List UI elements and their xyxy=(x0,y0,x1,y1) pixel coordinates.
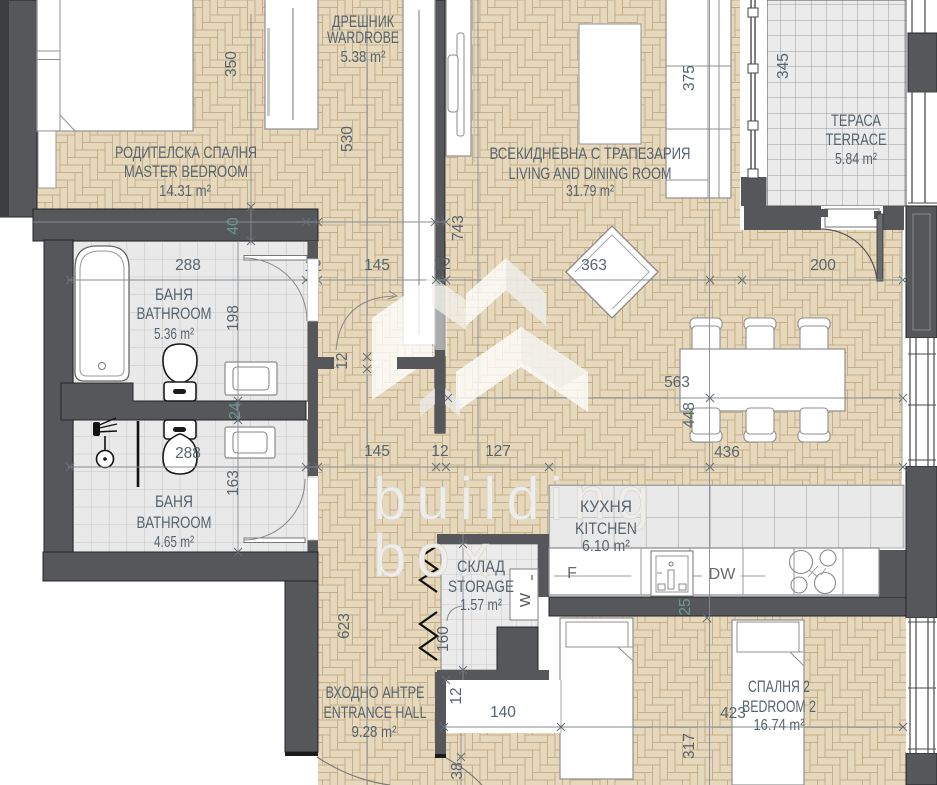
svg-text:345: 345 xyxy=(775,53,792,79)
svg-text:12: 12 xyxy=(334,352,351,369)
svg-text:350: 350 xyxy=(223,51,240,77)
svg-text:КУХНЯ: КУХНЯ xyxy=(580,497,632,516)
svg-text:12: 12 xyxy=(433,256,450,273)
svg-text:160: 160 xyxy=(435,626,452,652)
svg-text:СКЛАД: СКЛАД xyxy=(457,557,505,576)
svg-text:F: F xyxy=(567,565,577,582)
svg-text:375: 375 xyxy=(681,65,698,91)
svg-text:W: W xyxy=(517,592,534,607)
svg-text:448: 448 xyxy=(681,402,698,428)
svg-text:140: 140 xyxy=(490,704,516,721)
svg-text:5.84 m²: 5.84 m² xyxy=(835,151,878,168)
svg-text:9.28 m²: 9.28 m² xyxy=(352,724,398,741)
svg-text:14.31 m²: 14.31 m² xyxy=(159,183,212,200)
svg-text:DW: DW xyxy=(709,566,737,583)
svg-text:16.74 m²: 16.74 m² xyxy=(754,717,806,734)
svg-text:198: 198 xyxy=(225,305,242,331)
svg-text:363: 363 xyxy=(581,257,607,274)
svg-text:5.38 m²: 5.38 m² xyxy=(341,49,387,66)
svg-text:ВСЕКИДНЕВНА С ТРАПЕЗАРИЯ: ВСЕКИДНЕВНА С ТРАПЕЗАРИЯ xyxy=(490,144,691,163)
svg-text:СПАЛНЯ 2: СПАЛНЯ 2 xyxy=(748,677,810,696)
svg-text:145: 145 xyxy=(364,257,390,274)
svg-text:6.10 m²: 6.10 m² xyxy=(582,538,631,555)
svg-text:563: 563 xyxy=(664,374,690,391)
svg-text:24: 24 xyxy=(227,402,244,420)
svg-text:TERRACE: TERRACE xyxy=(826,130,887,149)
svg-text:317: 317 xyxy=(681,733,698,759)
svg-text:25: 25 xyxy=(677,598,694,615)
svg-text:5.36 m²: 5.36 m² xyxy=(154,326,194,343)
svg-text:288: 288 xyxy=(175,257,201,274)
svg-text:530: 530 xyxy=(339,126,356,152)
svg-text:BATHROOM: BATHROOM xyxy=(137,304,212,323)
svg-text:163: 163 xyxy=(225,470,242,496)
svg-text:БАНЯ: БАНЯ xyxy=(155,492,193,511)
svg-text:145: 145 xyxy=(364,443,390,460)
svg-text:BEDROOM 2: BEDROOM 2 xyxy=(742,697,816,716)
svg-text:12: 12 xyxy=(448,687,465,704)
svg-text:288: 288 xyxy=(175,445,201,462)
svg-text:743: 743 xyxy=(450,215,467,241)
svg-text:1.57 m²: 1.57 m² xyxy=(460,597,503,614)
svg-text:БАНЯ: БАНЯ xyxy=(155,285,193,304)
svg-text:LIVING AND DINING ROOM: LIVING AND DINING ROOM xyxy=(509,164,672,183)
svg-text:31.79 m²: 31.79 m² xyxy=(566,183,615,200)
svg-text:623: 623 xyxy=(336,613,353,639)
svg-text:STORAGE: STORAGE xyxy=(448,577,514,596)
svg-text:200: 200 xyxy=(810,257,836,274)
svg-text:38: 38 xyxy=(449,762,466,779)
svg-text:KITCHEN: KITCHEN xyxy=(575,519,637,538)
svg-text:12: 12 xyxy=(431,443,448,460)
svg-text:РОДИТЕЛСКА СПАЛНЯ: РОДИТЕЛСКА СПАЛНЯ xyxy=(115,143,257,162)
svg-text:436: 436 xyxy=(714,444,740,461)
svg-text:ENTRANCE HALL: ENTRANCE HALL xyxy=(324,703,427,722)
svg-text:40: 40 xyxy=(225,217,242,235)
svg-text:MASTER BEDROOM: MASTER BEDROOM xyxy=(124,162,248,181)
svg-text:4.65 m²: 4.65 m² xyxy=(154,534,194,551)
svg-text:ТЕРАСА: ТЕРАСА xyxy=(831,111,881,130)
svg-text:WARDROBE: WARDROBE xyxy=(327,28,399,47)
svg-text:127: 127 xyxy=(485,443,511,460)
svg-text:ВХОДНО АНТРЕ: ВХОДНО АНТРЕ xyxy=(326,683,425,702)
svg-text:BATHROOM: BATHROOM xyxy=(137,513,212,532)
